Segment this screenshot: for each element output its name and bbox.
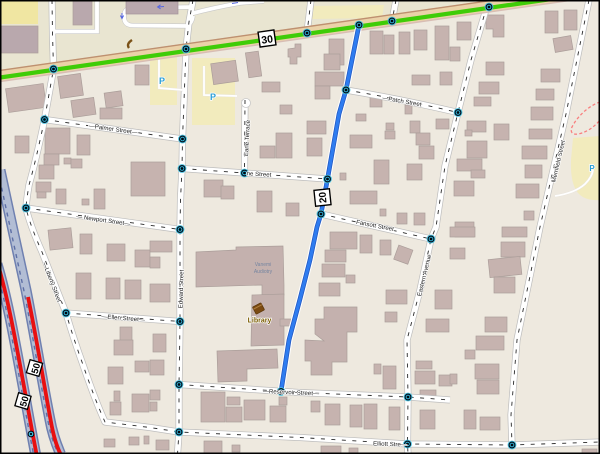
svg-text:20: 20 [317,191,329,203]
svg-text:P: P [589,164,595,173]
svg-text:P: P [159,76,165,86]
svg-text:30: 30 [261,33,274,47]
svg-text:P: P [210,92,216,102]
svg-text:Vanemi: Vanemi [255,262,272,268]
svg-text:Library: Library [248,318,272,325]
svg-text:Edward Street: Edward Street [177,269,185,308]
svg-text:Audiotry: Audiotry [254,269,273,275]
svg-text:Elliott Stre—: Elliott Stre— [373,440,408,448]
